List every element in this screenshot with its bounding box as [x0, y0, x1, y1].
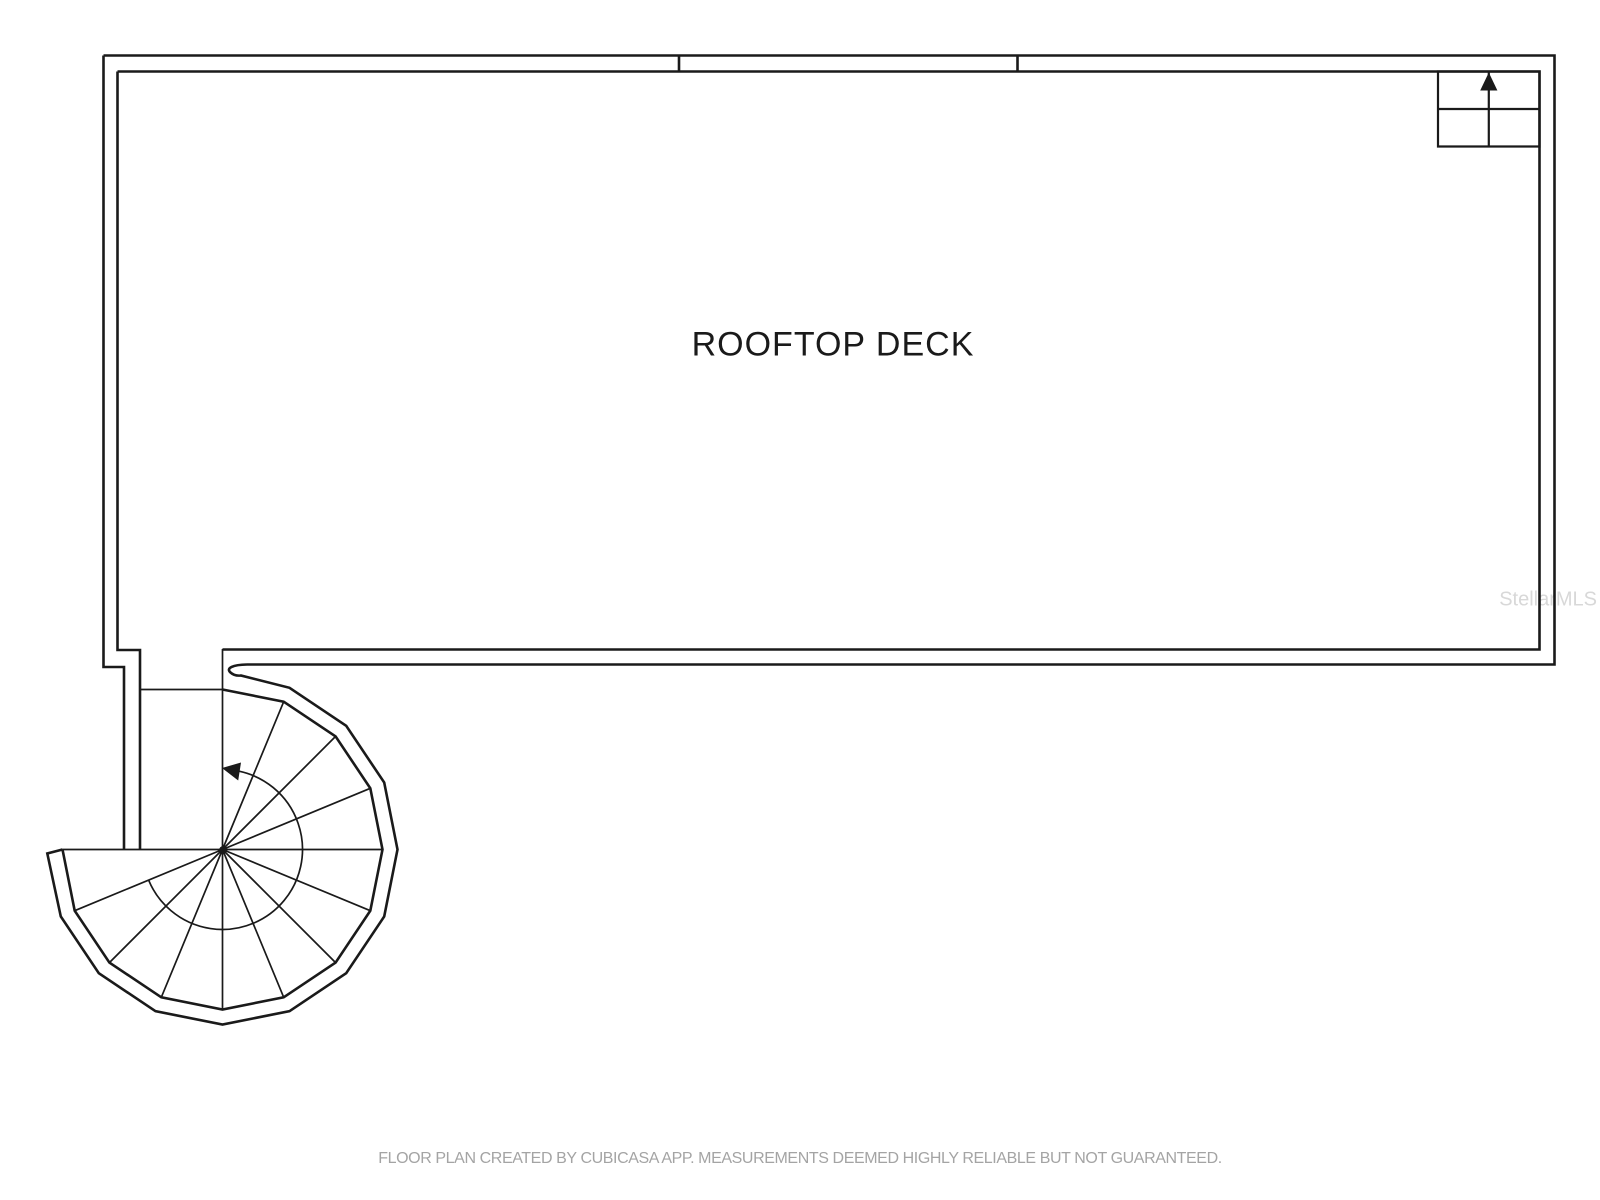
deck-walls: [104, 56, 1555, 850]
spiral-staircase: [47, 649, 397, 1025]
north-indicator: [1438, 72, 1540, 147]
left-wall-outer: [104, 56, 125, 850]
room-label-rooftop-deck: ROOFTOP DECK: [692, 326, 975, 365]
stair-center-post: [219, 846, 225, 852]
footer-disclaimer: FLOOR PLAN CREATED BY CUBICASA APP. MEAS…: [378, 1150, 1222, 1168]
stair-direction-arrow-icon: [222, 763, 241, 781]
wall-joints: [679, 56, 1018, 72]
floor-plan-drawing: [0, 0, 1600, 1200]
left-wall-inner: [118, 72, 141, 850]
floor-plan-page: StellarMLS: [0, 0, 1600, 1200]
north-arrow-icon: [1480, 73, 1497, 91]
stair-treads: [63, 649, 383, 1010]
